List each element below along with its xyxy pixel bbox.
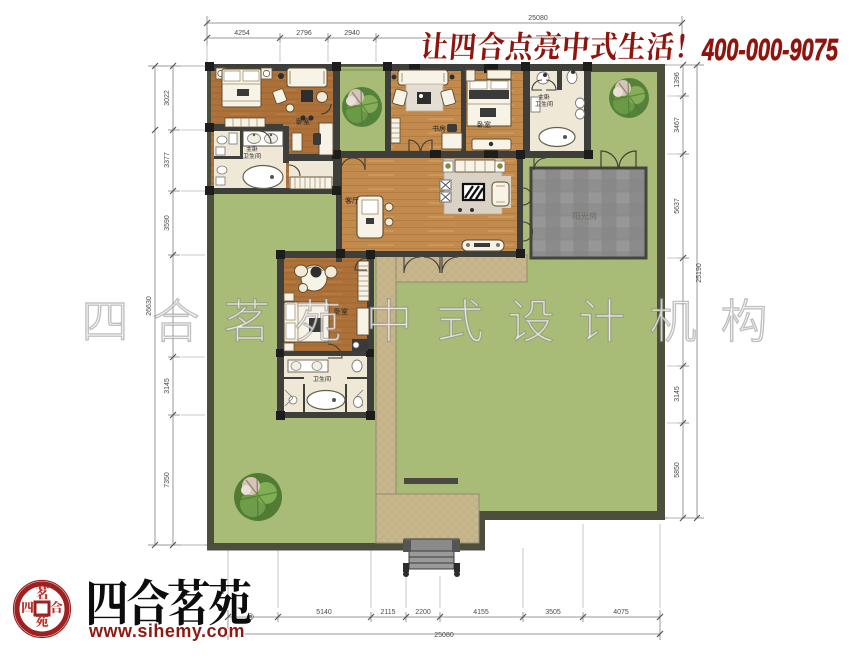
svg-text:4155: 4155 bbox=[473, 609, 489, 616]
svg-text:25080: 25080 bbox=[528, 15, 548, 22]
svg-text:4075: 4075 bbox=[613, 609, 629, 616]
svg-text:www.sihemy.com: www.sihemy.com bbox=[88, 621, 245, 641]
svg-text:3590: 3590 bbox=[164, 215, 171, 231]
svg-text:2115: 2115 bbox=[380, 609, 395, 616]
svg-text:3377: 3377 bbox=[164, 152, 171, 168]
svg-text:3145: 3145 bbox=[674, 386, 681, 402]
svg-text:25190: 25190 bbox=[696, 263, 703, 283]
svg-text:5637: 5637 bbox=[674, 198, 681, 214]
svg-text:25080: 25080 bbox=[434, 632, 454, 639]
svg-text:3022: 3022 bbox=[164, 90, 171, 106]
svg-text:5850: 5850 bbox=[674, 462, 681, 478]
svg-text:3467: 3467 bbox=[674, 117, 681, 133]
svg-text:3145: 3145 bbox=[164, 378, 171, 394]
svg-text:2940: 2940 bbox=[344, 30, 360, 37]
svg-text:2200: 2200 bbox=[415, 609, 431, 616]
svg-text:1396: 1396 bbox=[674, 72, 681, 88]
svg-text:26630: 26630 bbox=[146, 296, 153, 316]
svg-text:5140: 5140 bbox=[316, 609, 332, 616]
svg-text:3505: 3505 bbox=[545, 609, 561, 616]
svg-text:400-000-9075: 400-000-9075 bbox=[701, 32, 838, 67]
svg-text:2796: 2796 bbox=[296, 30, 312, 37]
svg-text:®: ® bbox=[247, 612, 254, 622]
svg-text:7350: 7350 bbox=[164, 472, 171, 488]
svg-text:4254: 4254 bbox=[234, 30, 250, 37]
